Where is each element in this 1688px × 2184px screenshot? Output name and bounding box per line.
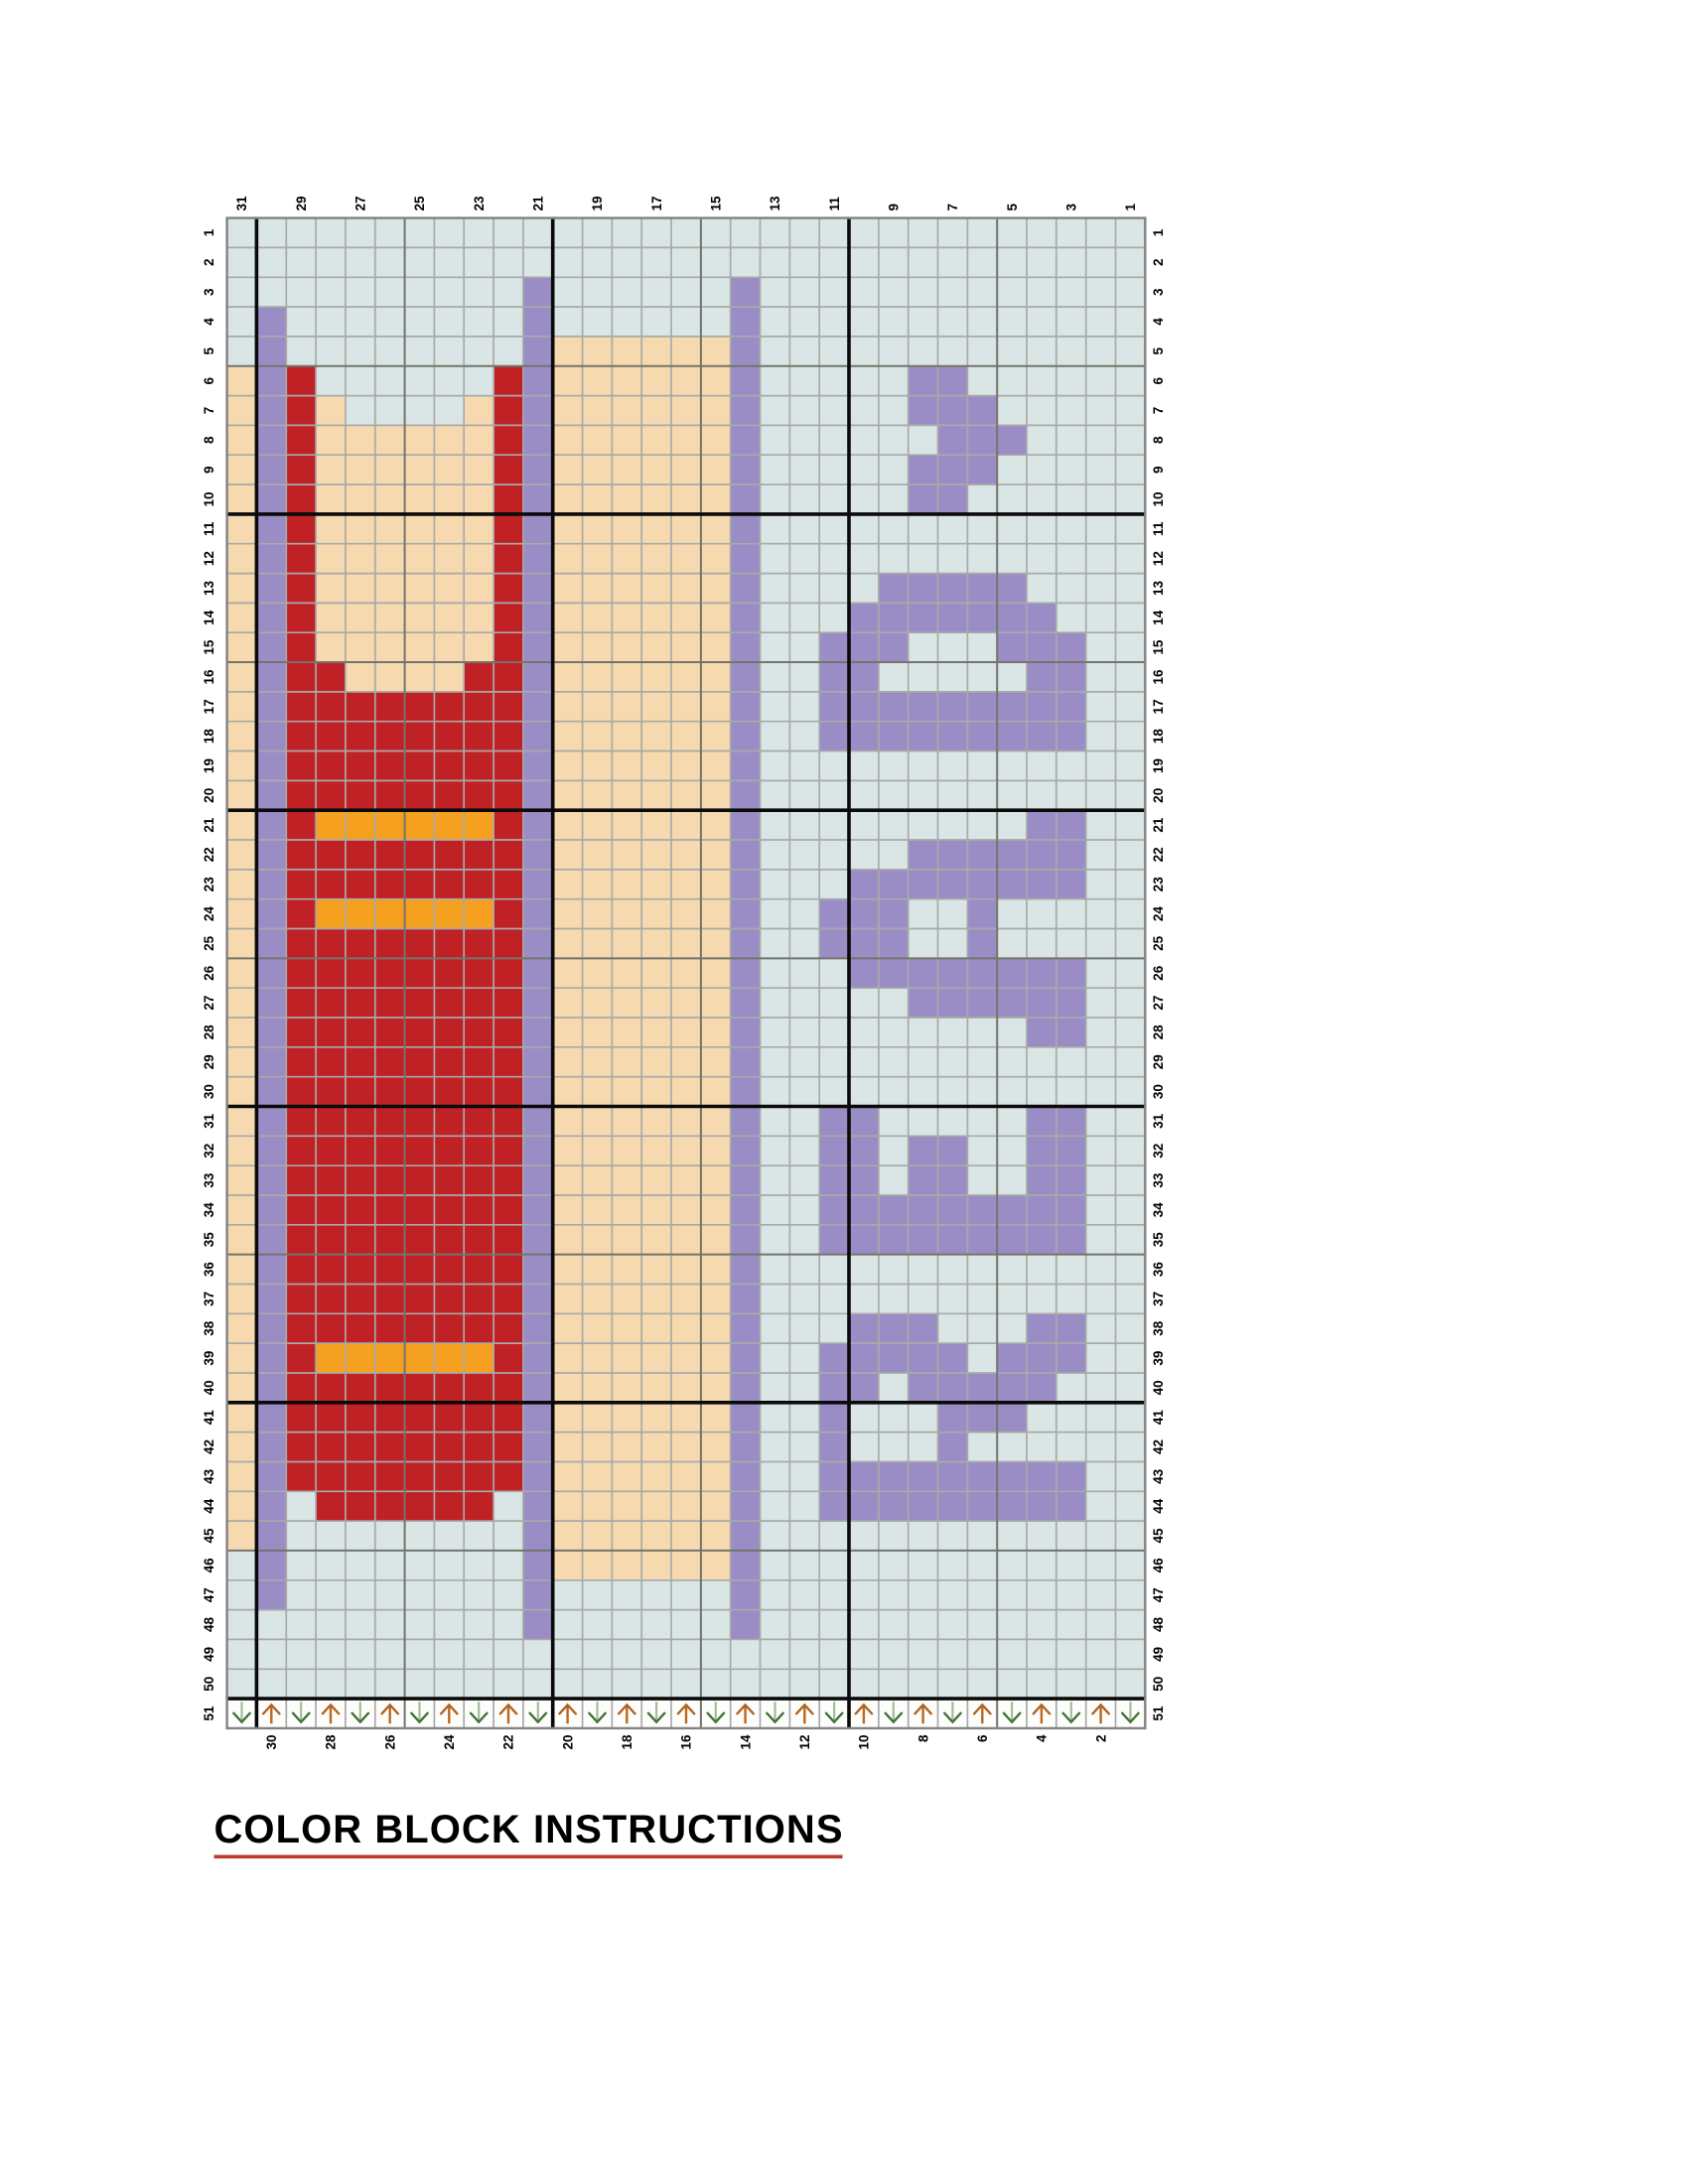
svg-text:22: 22 <box>1151 847 1166 862</box>
svg-text:11: 11 <box>827 197 842 211</box>
svg-text:42: 42 <box>1151 1439 1166 1454</box>
svg-text:30: 30 <box>1151 1084 1166 1099</box>
svg-text:5: 5 <box>1151 347 1166 355</box>
svg-text:19: 19 <box>1151 758 1166 773</box>
svg-text:51: 51 <box>202 1706 216 1721</box>
svg-text:2: 2 <box>1151 259 1166 267</box>
svg-text:1: 1 <box>202 228 216 236</box>
svg-text:29: 29 <box>202 1054 216 1069</box>
svg-text:28: 28 <box>1151 1024 1166 1040</box>
svg-text:10: 10 <box>857 1735 872 1750</box>
svg-text:COLOR BLOCK INSTRUCTIONS: COLOR BLOCK INSTRUCTIONS <box>214 1808 844 1851</box>
svg-text:39: 39 <box>1151 1351 1166 1366</box>
svg-text:29: 29 <box>294 196 309 210</box>
svg-text:18: 18 <box>620 1734 634 1750</box>
svg-text:15: 15 <box>1151 639 1166 655</box>
svg-text:6: 6 <box>202 376 216 384</box>
svg-text:27: 27 <box>353 196 368 210</box>
svg-text:37: 37 <box>202 1292 216 1306</box>
svg-text:35: 35 <box>1151 1232 1166 1248</box>
svg-text:17: 17 <box>1151 699 1166 714</box>
svg-text:40: 40 <box>1151 1380 1166 1395</box>
svg-text:12: 12 <box>1151 551 1166 566</box>
svg-text:32: 32 <box>202 1144 216 1159</box>
svg-text:2: 2 <box>202 259 216 267</box>
svg-text:4: 4 <box>1151 318 1166 326</box>
svg-text:7: 7 <box>202 407 216 415</box>
svg-text:25: 25 <box>1151 935 1166 951</box>
svg-text:28: 28 <box>202 1024 216 1040</box>
svg-text:51: 51 <box>1151 1706 1166 1721</box>
svg-text:8: 8 <box>915 1734 930 1742</box>
svg-text:4: 4 <box>1035 1734 1050 1742</box>
svg-text:5: 5 <box>202 347 216 355</box>
svg-text:11: 11 <box>202 521 216 536</box>
svg-text:16: 16 <box>679 1734 694 1750</box>
svg-text:31: 31 <box>1151 1113 1166 1129</box>
svg-text:24: 24 <box>1151 906 1166 922</box>
svg-text:48: 48 <box>202 1617 216 1633</box>
svg-text:8: 8 <box>1151 436 1166 444</box>
svg-text:14: 14 <box>1151 610 1166 625</box>
svg-text:20: 20 <box>560 1735 575 1750</box>
svg-text:16: 16 <box>1151 669 1166 685</box>
svg-text:30: 30 <box>202 1084 216 1099</box>
svg-text:32: 32 <box>1151 1144 1166 1159</box>
svg-text:30: 30 <box>264 1735 279 1750</box>
svg-text:21: 21 <box>531 196 546 211</box>
svg-text:46: 46 <box>1151 1558 1166 1573</box>
svg-text:50: 50 <box>202 1677 216 1692</box>
svg-text:21: 21 <box>1151 817 1166 833</box>
svg-text:27: 27 <box>1151 996 1166 1011</box>
svg-text:45: 45 <box>1151 1528 1166 1544</box>
svg-text:9: 9 <box>887 204 902 211</box>
svg-text:17: 17 <box>202 699 216 714</box>
svg-text:20: 20 <box>1151 788 1166 803</box>
svg-text:36: 36 <box>1151 1262 1166 1278</box>
svg-text:18: 18 <box>1151 729 1166 745</box>
svg-text:14: 14 <box>738 1734 753 1750</box>
svg-text:33: 33 <box>1151 1172 1166 1188</box>
svg-text:18: 18 <box>202 729 216 745</box>
svg-text:10: 10 <box>202 491 216 506</box>
svg-text:23: 23 <box>1151 877 1166 892</box>
svg-text:25: 25 <box>412 196 427 211</box>
svg-text:38: 38 <box>1151 1320 1166 1336</box>
svg-text:26: 26 <box>1151 965 1166 981</box>
svg-text:29: 29 <box>1151 1054 1166 1069</box>
svg-text:27: 27 <box>202 996 216 1011</box>
svg-text:43: 43 <box>202 1468 216 1484</box>
svg-text:1: 1 <box>1151 228 1166 236</box>
svg-text:16: 16 <box>202 669 216 685</box>
svg-text:46: 46 <box>202 1558 216 1573</box>
svg-text:15: 15 <box>709 196 724 211</box>
svg-text:36: 36 <box>202 1262 216 1278</box>
svg-text:37: 37 <box>1151 1292 1166 1306</box>
svg-text:3: 3 <box>1064 204 1079 211</box>
svg-text:19: 19 <box>202 758 216 773</box>
svg-text:6: 6 <box>1151 376 1166 384</box>
svg-text:14: 14 <box>202 610 216 625</box>
svg-text:49: 49 <box>202 1647 216 1662</box>
svg-text:12: 12 <box>202 551 216 566</box>
svg-text:25: 25 <box>202 935 216 951</box>
svg-text:21: 21 <box>202 817 216 833</box>
svg-text:10: 10 <box>1151 491 1166 506</box>
svg-text:39: 39 <box>202 1351 216 1366</box>
svg-text:15: 15 <box>202 639 216 655</box>
svg-text:47: 47 <box>1151 1587 1166 1602</box>
svg-text:12: 12 <box>797 1735 812 1750</box>
svg-text:2: 2 <box>1093 1735 1108 1743</box>
svg-text:7: 7 <box>1151 407 1166 415</box>
svg-text:31: 31 <box>234 196 249 211</box>
svg-text:6: 6 <box>975 1734 990 1742</box>
svg-text:20: 20 <box>202 788 216 803</box>
svg-text:5: 5 <box>1005 204 1020 211</box>
svg-text:35: 35 <box>202 1232 216 1248</box>
svg-text:34: 34 <box>202 1202 216 1218</box>
svg-text:26: 26 <box>202 965 216 981</box>
svg-text:24: 24 <box>202 906 216 922</box>
svg-text:50: 50 <box>1151 1677 1166 1692</box>
svg-text:38: 38 <box>202 1320 216 1336</box>
svg-text:43: 43 <box>1151 1468 1166 1484</box>
svg-text:33: 33 <box>202 1172 216 1188</box>
svg-text:42: 42 <box>202 1439 216 1454</box>
svg-text:22: 22 <box>501 1735 516 1750</box>
svg-text:17: 17 <box>649 196 664 210</box>
svg-text:24: 24 <box>442 1734 457 1750</box>
svg-text:34: 34 <box>1151 1202 1166 1218</box>
svg-text:9: 9 <box>202 466 216 474</box>
svg-text:3: 3 <box>202 288 216 296</box>
svg-text:13: 13 <box>1151 581 1166 597</box>
svg-text:44: 44 <box>202 1498 216 1514</box>
svg-text:1: 1 <box>1123 204 1138 211</box>
svg-text:22: 22 <box>202 847 216 862</box>
svg-text:11: 11 <box>1151 521 1166 536</box>
svg-text:13: 13 <box>202 581 216 597</box>
svg-text:26: 26 <box>382 1734 397 1750</box>
svg-text:40: 40 <box>202 1380 216 1395</box>
svg-text:48: 48 <box>1151 1617 1166 1633</box>
svg-text:19: 19 <box>590 196 605 210</box>
svg-text:41: 41 <box>1151 1410 1166 1426</box>
svg-text:44: 44 <box>1151 1498 1166 1514</box>
svg-text:8: 8 <box>202 436 216 444</box>
svg-text:31: 31 <box>202 1113 216 1129</box>
svg-text:13: 13 <box>768 196 782 211</box>
svg-text:9: 9 <box>1151 466 1166 474</box>
svg-text:41: 41 <box>202 1410 216 1426</box>
svg-text:23: 23 <box>472 196 487 211</box>
svg-text:7: 7 <box>945 204 960 211</box>
svg-text:23: 23 <box>202 877 216 892</box>
svg-text:49: 49 <box>1151 1647 1166 1662</box>
svg-text:28: 28 <box>324 1734 339 1750</box>
svg-text:45: 45 <box>202 1528 216 1544</box>
svg-text:3: 3 <box>1151 288 1166 296</box>
svg-text:4: 4 <box>202 318 216 326</box>
svg-text:47: 47 <box>202 1587 216 1602</box>
